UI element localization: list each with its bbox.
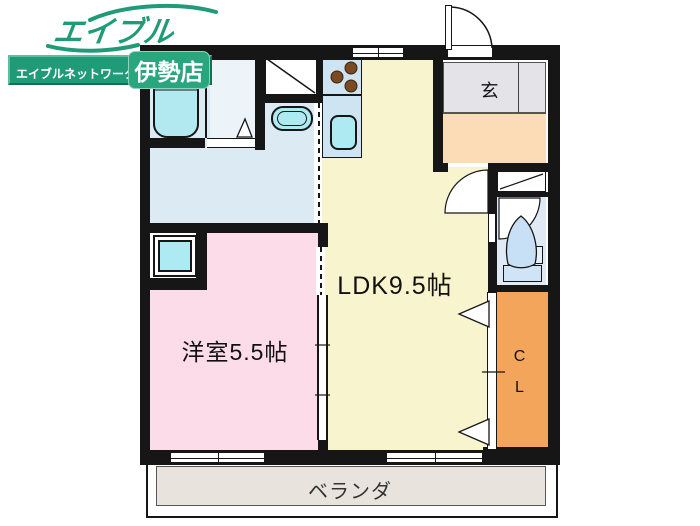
wall-hall-divider (433, 57, 443, 172)
closet-door-track (487, 292, 497, 450)
bedroom-window (170, 452, 265, 463)
store-name: 伊勢店 (135, 53, 204, 87)
accordion-partition (318, 103, 320, 223)
logo-swoosh-bottom (48, 45, 138, 51)
kitchen-window (352, 47, 404, 58)
bedroom-sliding-door (317, 295, 328, 440)
wash-basin-inner (277, 111, 307, 126)
wall-partition-stub-bottom (318, 440, 328, 452)
ldk-room-lower-right (443, 167, 488, 450)
storage-nook-box-inner (158, 240, 192, 272)
wall-toilet-top (497, 192, 548, 197)
washroom-door (207, 138, 255, 148)
banner-network-text: エイブルネットワーク (16, 65, 136, 82)
entrance-door-leaf (445, 5, 452, 50)
hall-door-leaf (488, 213, 496, 243)
toilet-upper-shelf (497, 170, 546, 192)
kitchen-sink (330, 115, 357, 150)
bedroom-label: 洋室5.5帖 (150, 333, 320, 367)
changing-room (210, 57, 255, 138)
closet-label-l: L (507, 379, 533, 397)
entrance-threshold (448, 46, 492, 59)
toilet-tank (503, 265, 542, 282)
wall-partition-stub-top (318, 233, 328, 247)
closet-area (497, 292, 548, 450)
entrance-label: 玄 (460, 77, 520, 103)
wall-washing-bottom (265, 95, 322, 103)
hall-area (443, 113, 546, 163)
ldk-label: LDK9.5帖 (300, 266, 490, 302)
wall-nook-bottom (140, 278, 207, 290)
wall-bath-bottom (140, 138, 205, 148)
wall-hall-bottom-left (433, 163, 448, 172)
wall-right (548, 45, 560, 462)
floorplan-page: LDK9.5帖 洋室5.5帖 玄 C L ベランダ エイブル エイブルネットワー… (0, 0, 700, 526)
washing-machine-space (265, 57, 317, 95)
logo-swoosh-top (90, 6, 216, 20)
stove-counter (322, 57, 362, 95)
toilet-handle (534, 246, 543, 264)
wall-toilet-bottom (488, 285, 548, 292)
store-badge: 伊勢店 (128, 51, 210, 89)
wall-above-toilet (488, 163, 548, 172)
balcony-label: ベランダ (250, 475, 450, 504)
logo-text: エイブル (51, 15, 178, 49)
wall-nook-vertical (196, 233, 207, 280)
wall-changing-right (255, 57, 265, 150)
entrance-door-arc (451, 7, 492, 48)
closet-label-c: C (507, 348, 533, 366)
wall-left (140, 45, 150, 465)
wall-washroom-bottom (148, 223, 328, 233)
ldk-window (386, 452, 483, 463)
